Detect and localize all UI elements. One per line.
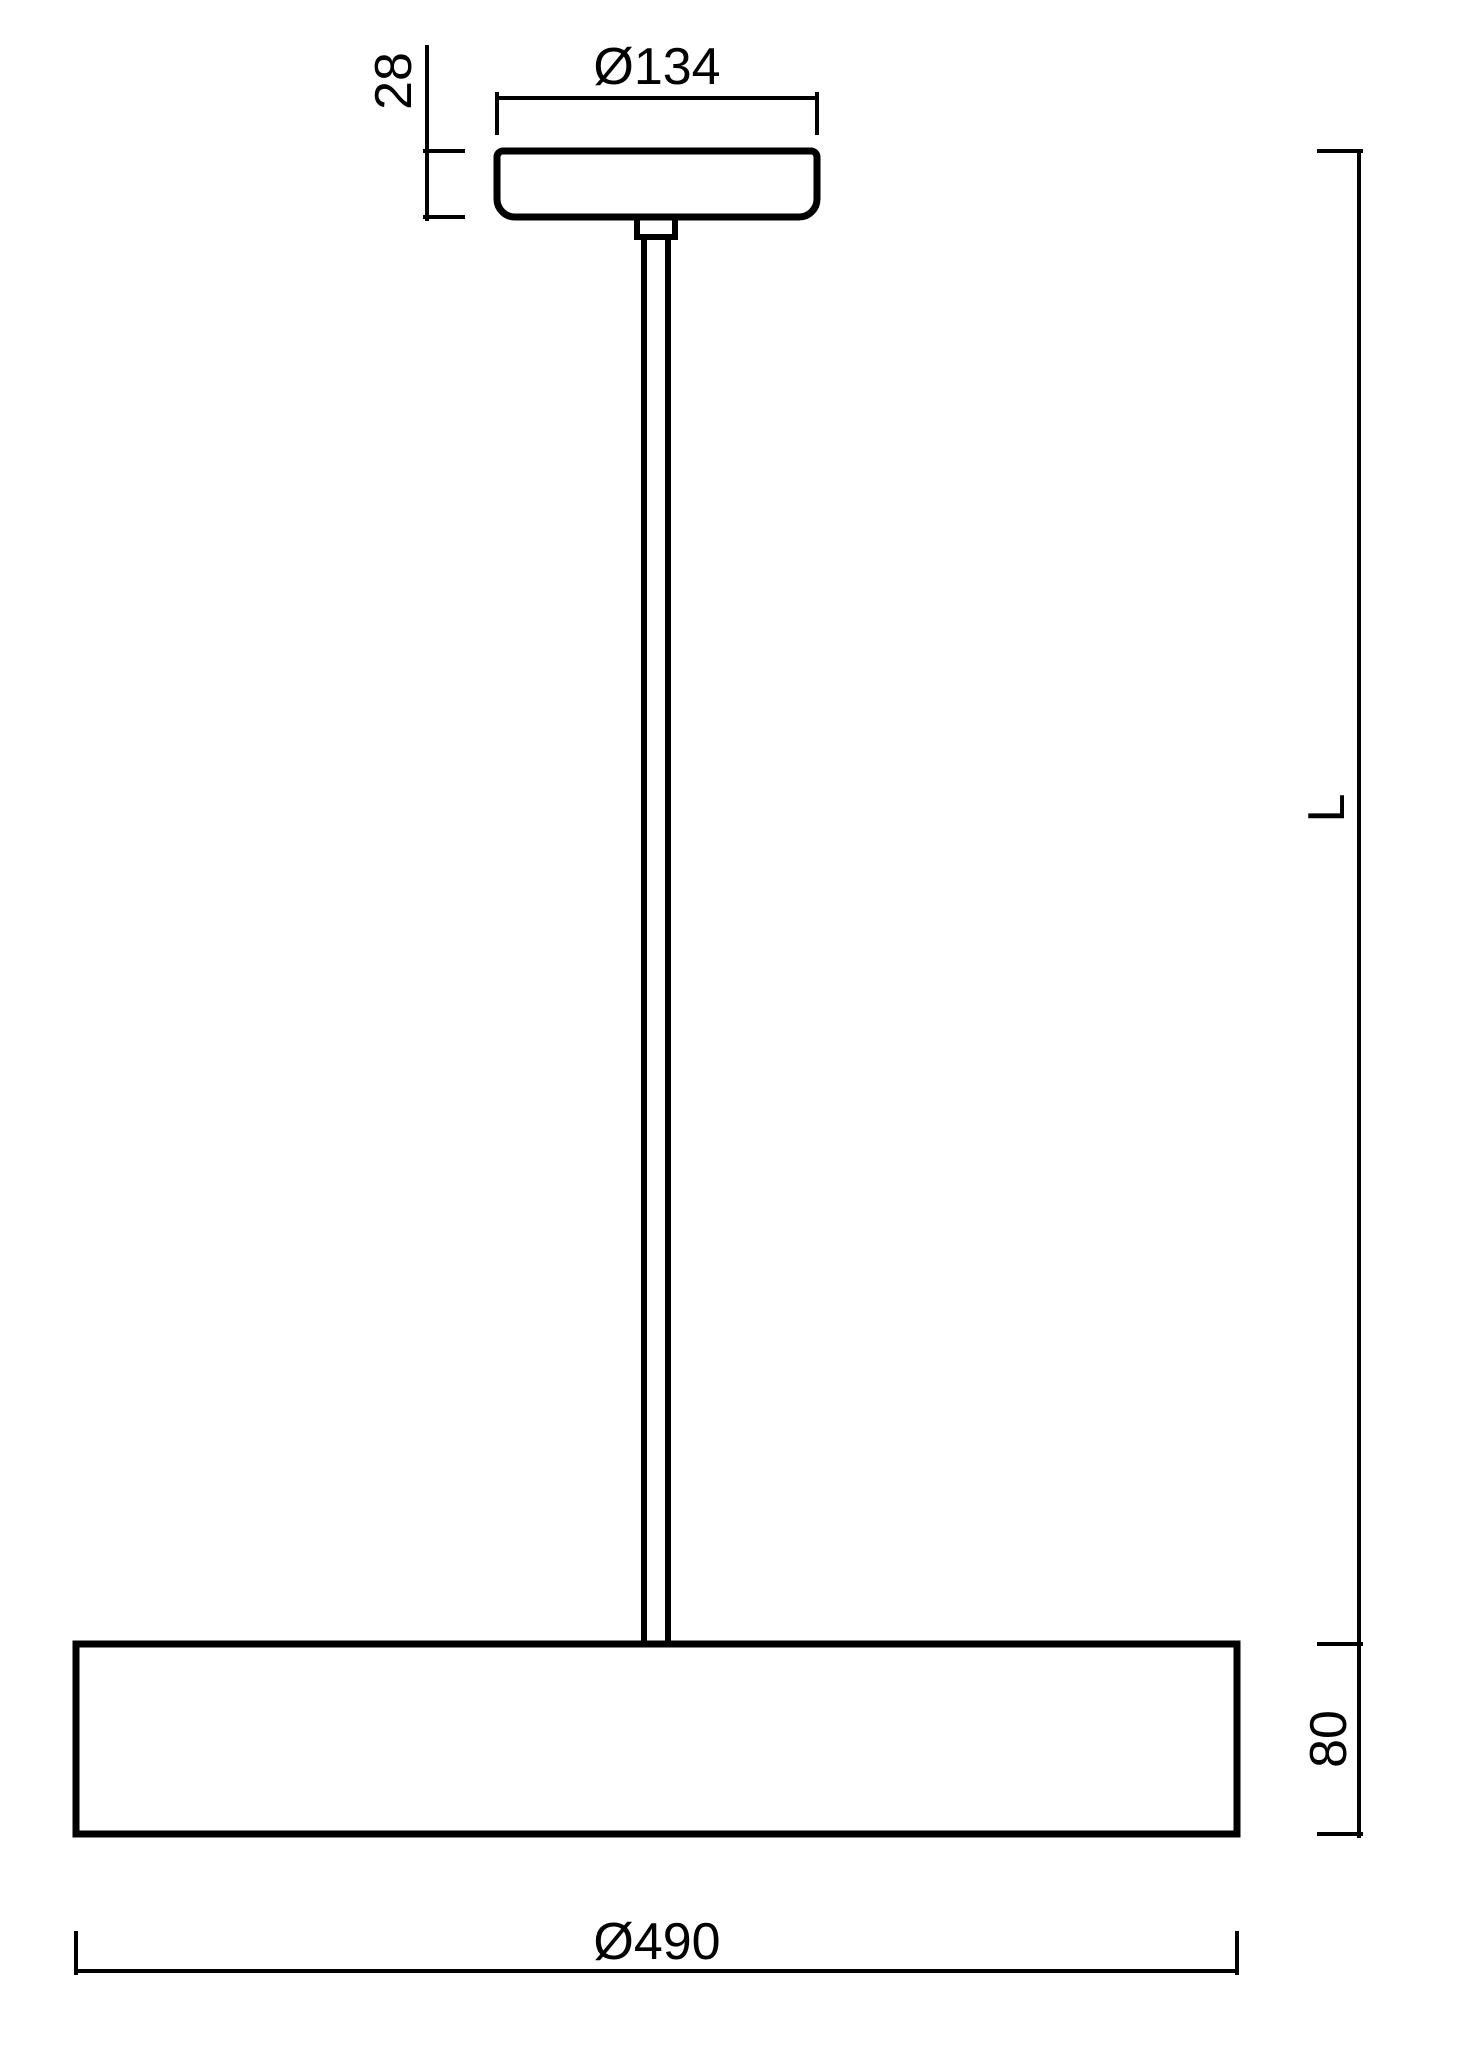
pendant-luminaire-drawing bbox=[0, 0, 1458, 2063]
dim-suspension-and-shade-height bbox=[1317, 151, 1363, 1838]
dim-canopy-height bbox=[423, 45, 465, 221]
canopy-outline bbox=[497, 151, 817, 217]
technical-drawing: Ø134 28 L 80 Ø490 bbox=[0, 0, 1458, 2063]
suspension-length-label: L bbox=[1301, 794, 1353, 823]
canopy-diameter-label: Ø134 bbox=[593, 41, 720, 93]
shade-outline bbox=[76, 1644, 1237, 1834]
canopy-height-label: 28 bbox=[368, 52, 420, 110]
dim-canopy-diameter bbox=[497, 92, 817, 135]
luminaire-figure bbox=[76, 151, 1237, 1834]
shade-diameter-label: Ø490 bbox=[593, 1916, 720, 1968]
shade-height-label: 80 bbox=[1303, 1710, 1355, 1768]
dimension-lines bbox=[76, 45, 1363, 1975]
stem-connector bbox=[637, 217, 675, 237]
